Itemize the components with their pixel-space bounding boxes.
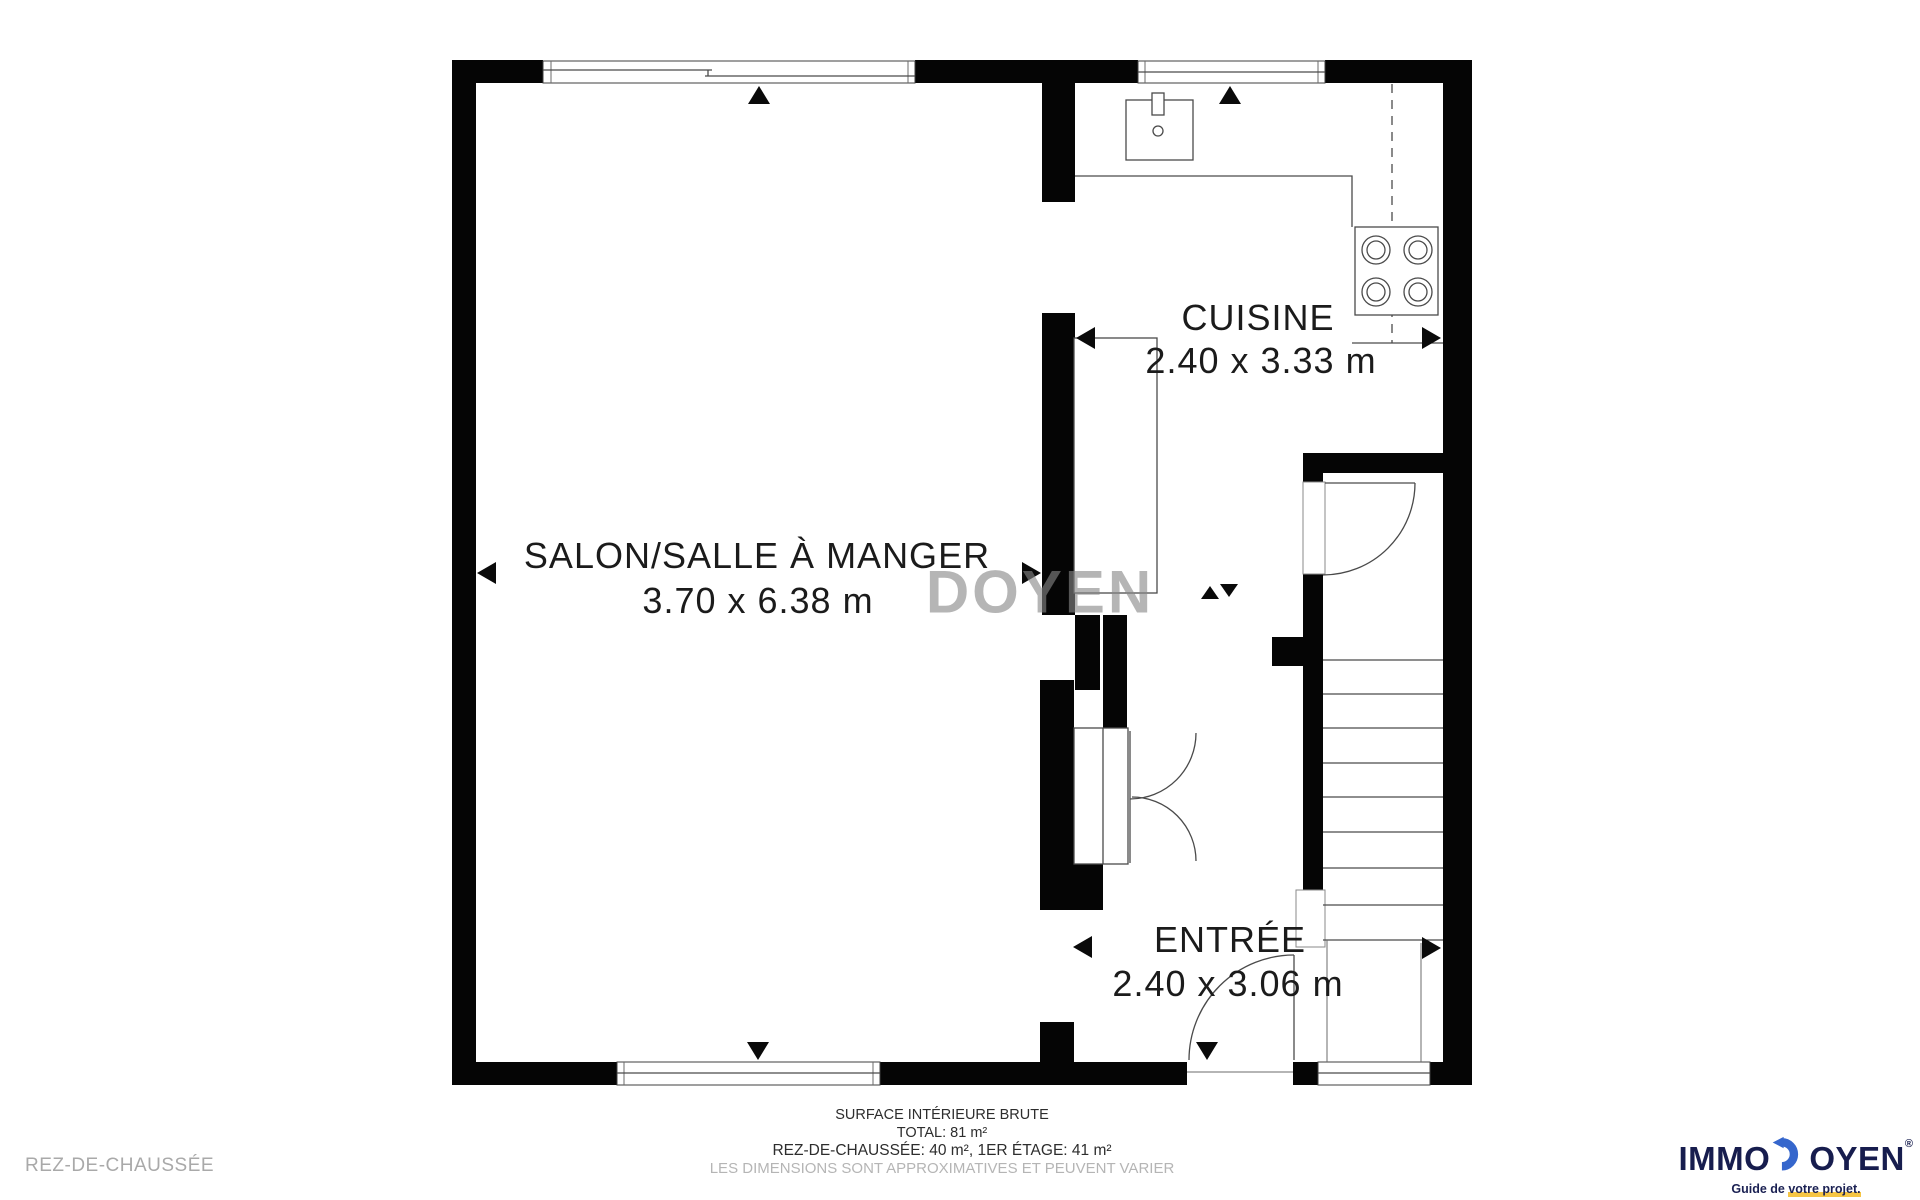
wall-salon-entree — [1040, 1022, 1074, 1062]
dimension-arrow-left-icon — [1073, 936, 1092, 958]
wall-right — [1443, 60, 1472, 1085]
level-arrow-down-icon — [1220, 584, 1238, 597]
wall-stub — [1074, 864, 1103, 910]
wall — [1293, 1062, 1318, 1085]
window-salon-bottom — [617, 1062, 880, 1085]
floor-label: REZ-DE-CHAUSSÉE — [25, 1155, 214, 1177]
watermark: DOYEN — [926, 558, 1154, 627]
wall-kitchen-stairs — [1303, 453, 1443, 473]
room-dimensions-salon: 3.70 x 6.38 m — [642, 580, 873, 622]
door-arrow-down-icon — [1196, 1042, 1218, 1060]
kitchen-counter-top — [1075, 176, 1352, 227]
logo-text-prefix: IMMO — [1679, 1140, 1771, 1178]
tagline-prefix: Guide de — [1731, 1182, 1788, 1196]
closet-door-arc — [1132, 797, 1196, 861]
window-arrow-up-icon — [1219, 86, 1241, 104]
room-label-cuisine: CUISINE — [1181, 297, 1334, 339]
window-salon-top — [543, 61, 915, 83]
wall — [880, 1062, 1187, 1085]
closet — [1074, 728, 1196, 864]
surface-disclaimer: LES DIMENSIONS SONT APPROXIMATIVES ET PE… — [710, 1160, 1175, 1178]
surface-total: TOTAL: 81 m² — [710, 1124, 1175, 1142]
wall-left — [452, 60, 476, 1085]
closet-body — [1074, 728, 1128, 864]
closet-door-arc — [1130, 733, 1196, 799]
window-kitchen-top — [1138, 61, 1325, 83]
logo-d-arrow-icon — [1771, 1136, 1808, 1181]
logo-tagline: Guide de votre projet. — [1678, 1182, 1914, 1196]
floor-plan-page: SALON/SALLE À MANGER 3.70 x 6.38 m CUISI… — [0, 0, 1920, 1200]
stove-icon — [1355, 227, 1438, 315]
registered-mark: ® — [1905, 1138, 1914, 1150]
stair-door-opening — [1303, 482, 1325, 574]
surface-summary: SURFACE INTÉRIEURE BRUTE TOTAL: 81 m² RE… — [710, 1106, 1175, 1178]
wall — [1430, 1062, 1472, 1085]
wall — [452, 1062, 617, 1085]
wall-entree-stub — [1272, 637, 1303, 666]
room-dimensions-entree: 2.40 x 3.06 m — [1112, 963, 1343, 1005]
wall-jog — [1103, 615, 1127, 728]
wall-stairwell — [1303, 573, 1323, 890]
logo-text-suffix: OYEN — [1809, 1140, 1905, 1178]
dimension-arrow-right-icon — [1422, 327, 1441, 349]
window-arrow-down-icon — [747, 1042, 769, 1060]
window-arrow-up-icon — [748, 86, 770, 104]
room-label-salon: SALON/SALLE À MANGER — [524, 535, 990, 577]
immodoyen-logo: IMMO OYEN ® Guide de votre projet. — [1678, 1136, 1914, 1196]
wall-salon-kitchen — [1042, 83, 1075, 202]
dimension-arrow-left-icon — [477, 562, 496, 584]
sink-faucet-icon — [1152, 93, 1164, 115]
surface-title: SURFACE INTÉRIEURE BRUTE — [710, 1106, 1175, 1124]
stair-door-arc — [1323, 483, 1415, 575]
room-dimensions-cuisine: 2.40 x 3.33 m — [1145, 340, 1376, 382]
stair-treads — [1323, 660, 1443, 940]
room-label-entree: ENTRÉE — [1154, 919, 1306, 961]
wall-salon-entree — [1040, 680, 1074, 910]
logo-wordmark: IMMO OYEN ® — [1678, 1136, 1914, 1181]
window-stairs-bottom — [1318, 1062, 1430, 1085]
wall-stairwell — [1303, 473, 1323, 482]
surface-breakdown: REZ-DE-CHAUSSÉE: 40 m², 1ER ÉTAGE: 41 m² — [710, 1142, 1175, 1160]
level-arrow-up-icon — [1201, 586, 1219, 599]
wall — [915, 60, 1138, 83]
tagline-highlight: votre projet. — [1788, 1182, 1860, 1197]
